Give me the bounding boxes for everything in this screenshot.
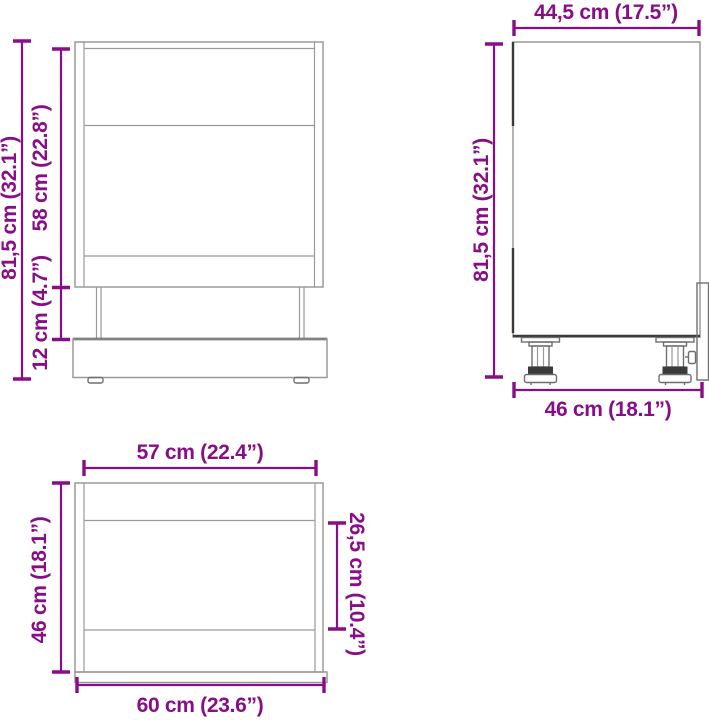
- front-body-height-dimension: 58 cm (22.8”) 12 cm (4.7”): [29, 49, 70, 371]
- top-inner-depth-label: 26,5 cm (10.4”): [345, 512, 368, 656]
- side-cabinet-drawing: [513, 42, 709, 385]
- side-foot-knob: [689, 352, 696, 364]
- front-total-height-dimension: 81,5 cm (32.1”): [0, 41, 31, 379]
- front-plinth-board: [73, 339, 327, 378]
- side-view: 44,5 cm (17.5”) 81,5 cm (32.1”) 46 cm (1…: [470, 1, 709, 421]
- top-carcass-outline: [75, 483, 323, 672]
- top-view: 57 cm (22.4”) 46 cm (18.1”) 26,5 cm (10.…: [28, 441, 368, 717]
- top-cabinet-drawing: [75, 483, 327, 683]
- top-depth-label: 46 cm (18.1”): [28, 517, 51, 644]
- top-inner-width-label: 57 cm (22.4”): [137, 441, 264, 464]
- front-cabinet-drawing: [73, 42, 327, 383]
- top-inner-depth-dimension: 26,5 cm (10.4”): [328, 512, 368, 656]
- side-top-depth-label: 44,5 cm (17.5”): [534, 1, 678, 24]
- side-height-dimension: 81,5 cm (32.1”): [470, 44, 503, 377]
- front-total-height-label: 81,5 cm (32.1”): [0, 136, 21, 280]
- front-plinth-height-label: 12 cm (4.7”): [29, 255, 52, 370]
- front-legs: [97, 287, 305, 339]
- front-carcass-outline: [75, 42, 323, 287]
- side-front-foot: [522, 338, 560, 386]
- side-bottom-depth-label: 46 cm (18.1”): [545, 398, 672, 421]
- side-height-label: 81,5 cm (32.1”): [470, 138, 493, 282]
- top-depth-dimension: 46 cm (18.1”): [28, 483, 70, 672]
- side-bottom-depth-dimension: 46 cm (18.1”): [514, 382, 702, 421]
- side-top-depth-dimension: 44,5 cm (17.5”): [514, 1, 699, 36]
- top-door-front-strip: [75, 672, 327, 683]
- cabinet-dimension-diagram: 81,5 cm (32.1”) 58 cm (22.8”) 12 cm (4.7…: [0, 0, 709, 720]
- front-right-foot: [294, 378, 309, 384]
- front-body-height-label: 58 cm (22.8”): [29, 105, 52, 232]
- side-back-panel: [697, 283, 709, 380]
- side-body-outline: [513, 42, 700, 337]
- top-inner-width-dimension: 57 cm (22.4”): [84, 441, 316, 476]
- top-outer-width-label: 60 cm (23.6”): [137, 694, 264, 717]
- front-view: 81,5 cm (32.1”) 58 cm (22.8”) 12 cm (4.7…: [0, 41, 327, 383]
- front-left-foot: [88, 378, 103, 384]
- side-rear-foot: [656, 338, 696, 386]
